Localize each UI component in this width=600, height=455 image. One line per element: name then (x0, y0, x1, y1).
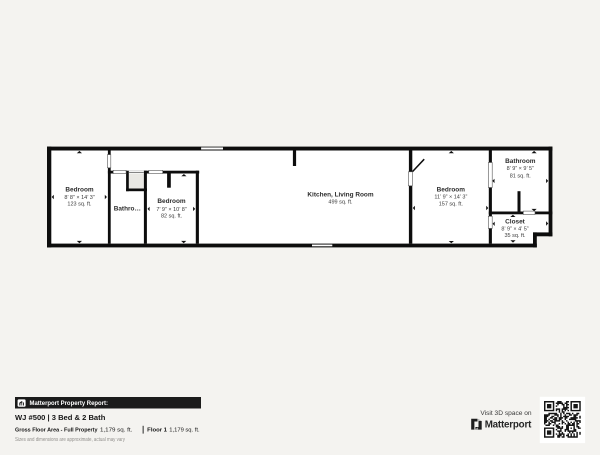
svg-text:8’ 9” × 9’ 5”: 8’ 9” × 9’ 5” (507, 166, 534, 172)
svg-text:35 sq. ft.: 35 sq. ft. (504, 233, 526, 239)
svg-text:1,179 sq. ft.: 1,179 sq. ft. (100, 428, 133, 434)
svg-text:Bedroom: Bedroom (437, 186, 466, 193)
svg-text:Bedroom: Bedroom (157, 198, 186, 205)
svg-text:Sizes and dimensions are appro: Sizes and dimensions are approximate, ac… (15, 437, 125, 443)
svg-text:Matterport: Matterport (485, 420, 532, 431)
svg-text:Kitchen, Living Room: Kitchen, Living Room (307, 192, 373, 199)
svg-text:82 sq. ft.: 82 sq. ft. (161, 214, 183, 220)
svg-text:Bathroom: Bathroom (505, 158, 536, 165)
svg-text:8’ 8” × 14’ 3”: 8’ 8” × 14’ 3” (64, 195, 94, 201)
svg-text:157 sq. ft.: 157 sq. ft. (439, 202, 464, 208)
svg-text:8’ 9” × 4’ 5”: 8’ 9” × 4’ 5” (501, 226, 528, 232)
svg-text:Visit 3D space on: Visit 3D space on (480, 410, 532, 417)
svg-text:81 sq. ft.: 81 sq. ft. (510, 174, 532, 180)
svg-text:1,179 sq. ft.: 1,179 sq. ft. (169, 428, 200, 434)
svg-text:Bedroom: Bedroom (65, 186, 94, 193)
svg-text:Closet: Closet (505, 219, 526, 226)
svg-text:WJ #500 | 3 Bed & 2 Bath: WJ #500 | 3 Bed & 2 Bath (15, 413, 106, 422)
svg-text:11’ 9” × 14’ 3”: 11’ 9” × 14’ 3” (434, 195, 467, 201)
svg-text:499 sq. ft.: 499 sq. ft. (328, 200, 353, 206)
svg-text:Bathro…: Bathro… (114, 205, 141, 212)
svg-text:123 sq. ft.: 123 sq. ft. (67, 201, 92, 207)
svg-text:Matterport Property Report:: Matterport Property Report: (30, 400, 109, 407)
svg-text:Floor 1: Floor 1 (147, 428, 168, 434)
svg-text:7’ 9” × 10’ 8”: 7’ 9” × 10’ 8” (156, 207, 186, 213)
svg-text:Gross Floor Area - Full Proper: Gross Floor Area - Full Property (15, 428, 98, 434)
